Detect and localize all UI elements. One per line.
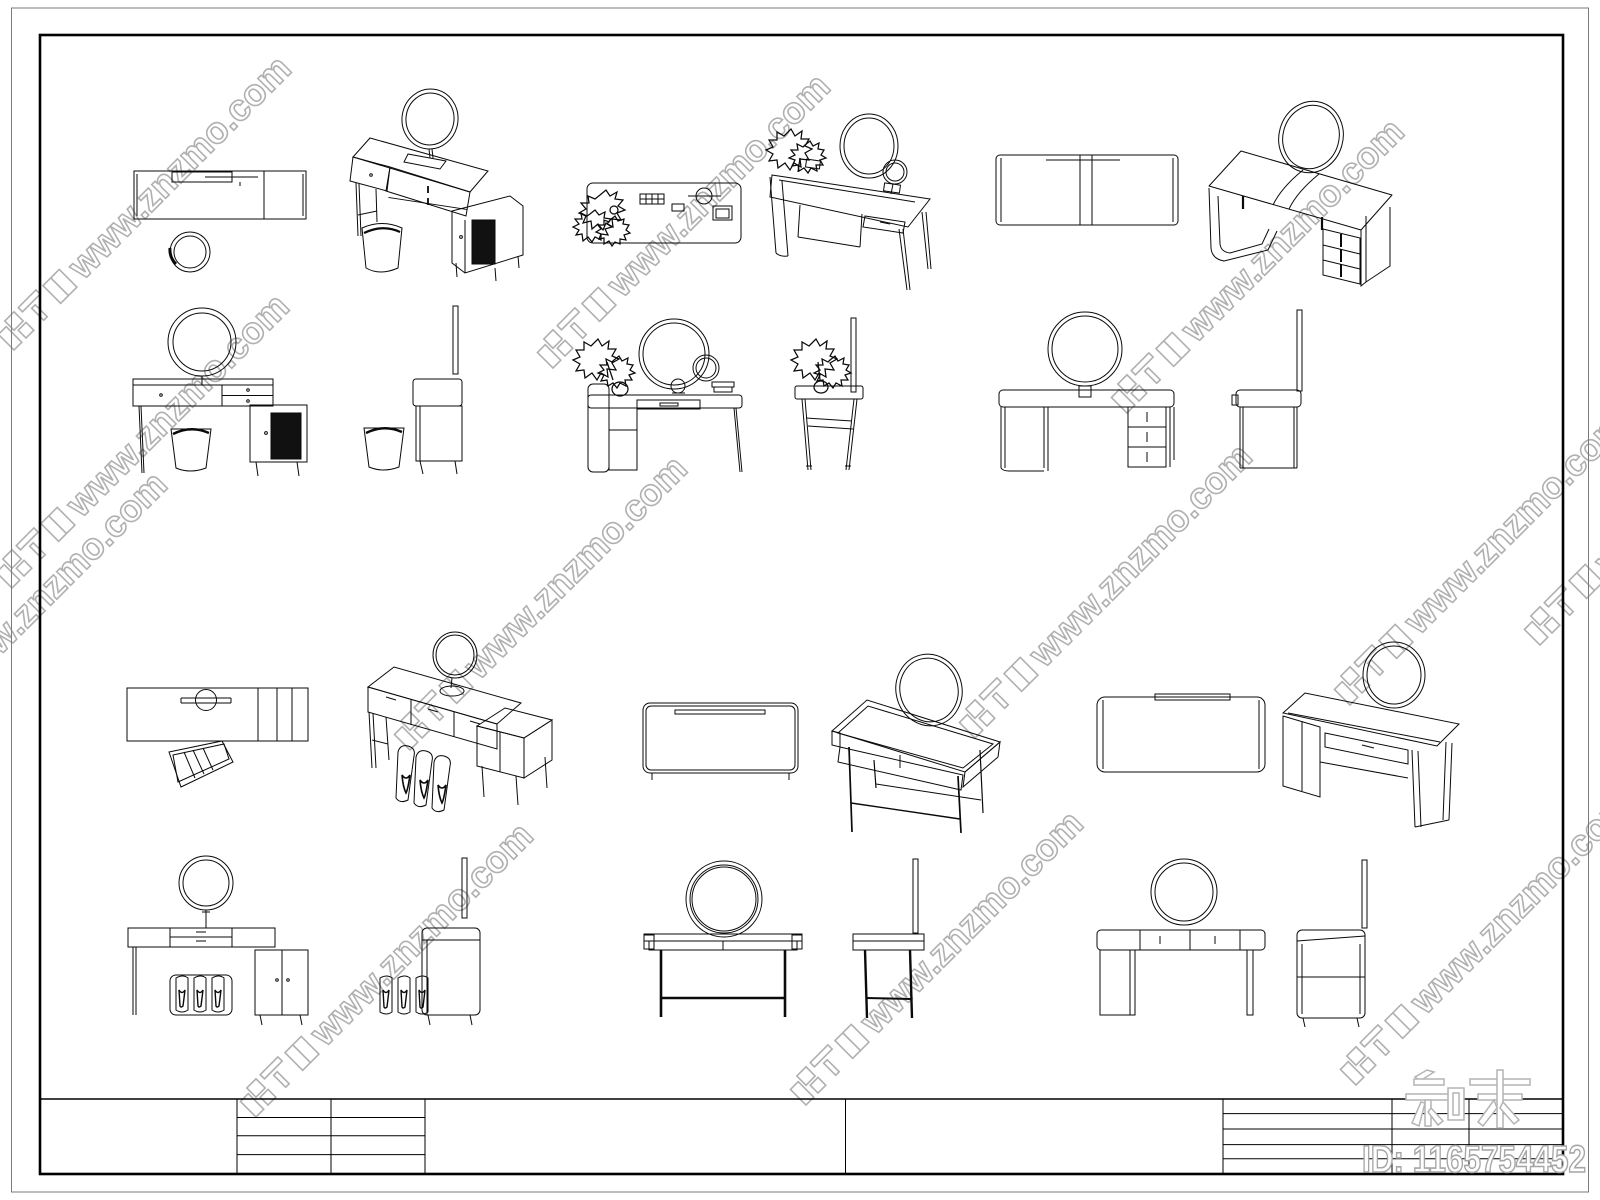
svg-text:ID: 1165754452: ID: 1165754452 [1362,1139,1586,1181]
